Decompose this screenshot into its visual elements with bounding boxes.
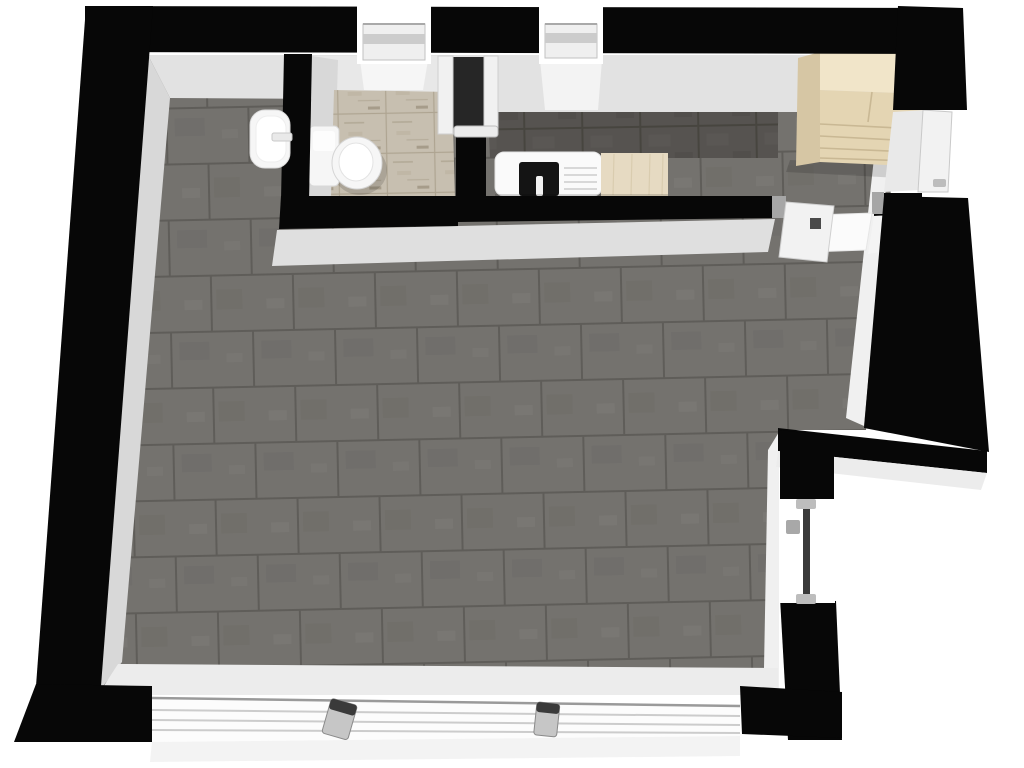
bottom-window-sill-inner bbox=[98, 664, 778, 695]
bottom-left-corner-wall bbox=[14, 684, 152, 742]
bathroom-door-jamb-left bbox=[438, 56, 453, 134]
bathroom-door-jamb-right bbox=[484, 56, 498, 134]
notch-wall-upper bbox=[780, 430, 834, 504]
kitchen-backsplash bbox=[488, 112, 778, 158]
floorplan-stage bbox=[0, 0, 1024, 768]
window-south-band bbox=[150, 697, 740, 762]
window-right bbox=[779, 499, 835, 604]
wardrobe-side-face bbox=[796, 52, 820, 166]
hall-door-post-right bbox=[872, 192, 884, 214]
south-window-handle-right bbox=[534, 702, 560, 737]
bottom-right-corner-wall bbox=[740, 686, 842, 738]
floorplan-canvas bbox=[0, 0, 1024, 768]
bathroom bbox=[309, 56, 456, 198]
kitchen-faucet bbox=[536, 176, 543, 196]
wall-basin bbox=[250, 110, 292, 168]
kitchen-front-wall bbox=[458, 196, 775, 222]
hall-door-handle bbox=[810, 218, 821, 229]
bathroom-door-handle-bar bbox=[454, 126, 498, 137]
top-wall bbox=[85, 6, 960, 54]
bathroom-east-wall bbox=[456, 132, 486, 200]
window-top-left bbox=[357, 4, 431, 64]
kitchen-counter-wood bbox=[601, 153, 668, 196]
bathroom-door-gap bbox=[453, 57, 484, 133]
window-top-right bbox=[539, 4, 603, 64]
bathroom-door bbox=[438, 56, 498, 137]
top-right-corner-wall bbox=[893, 6, 967, 110]
right-wall-lower bbox=[864, 196, 989, 452]
window-glow-right bbox=[540, 60, 602, 110]
hall-door-leaf bbox=[779, 202, 834, 262]
entry-door bbox=[884, 110, 952, 192]
window-glow-left bbox=[360, 60, 428, 90]
bathroom-south-wall bbox=[279, 196, 458, 229]
entry-door-handle bbox=[933, 179, 946, 187]
